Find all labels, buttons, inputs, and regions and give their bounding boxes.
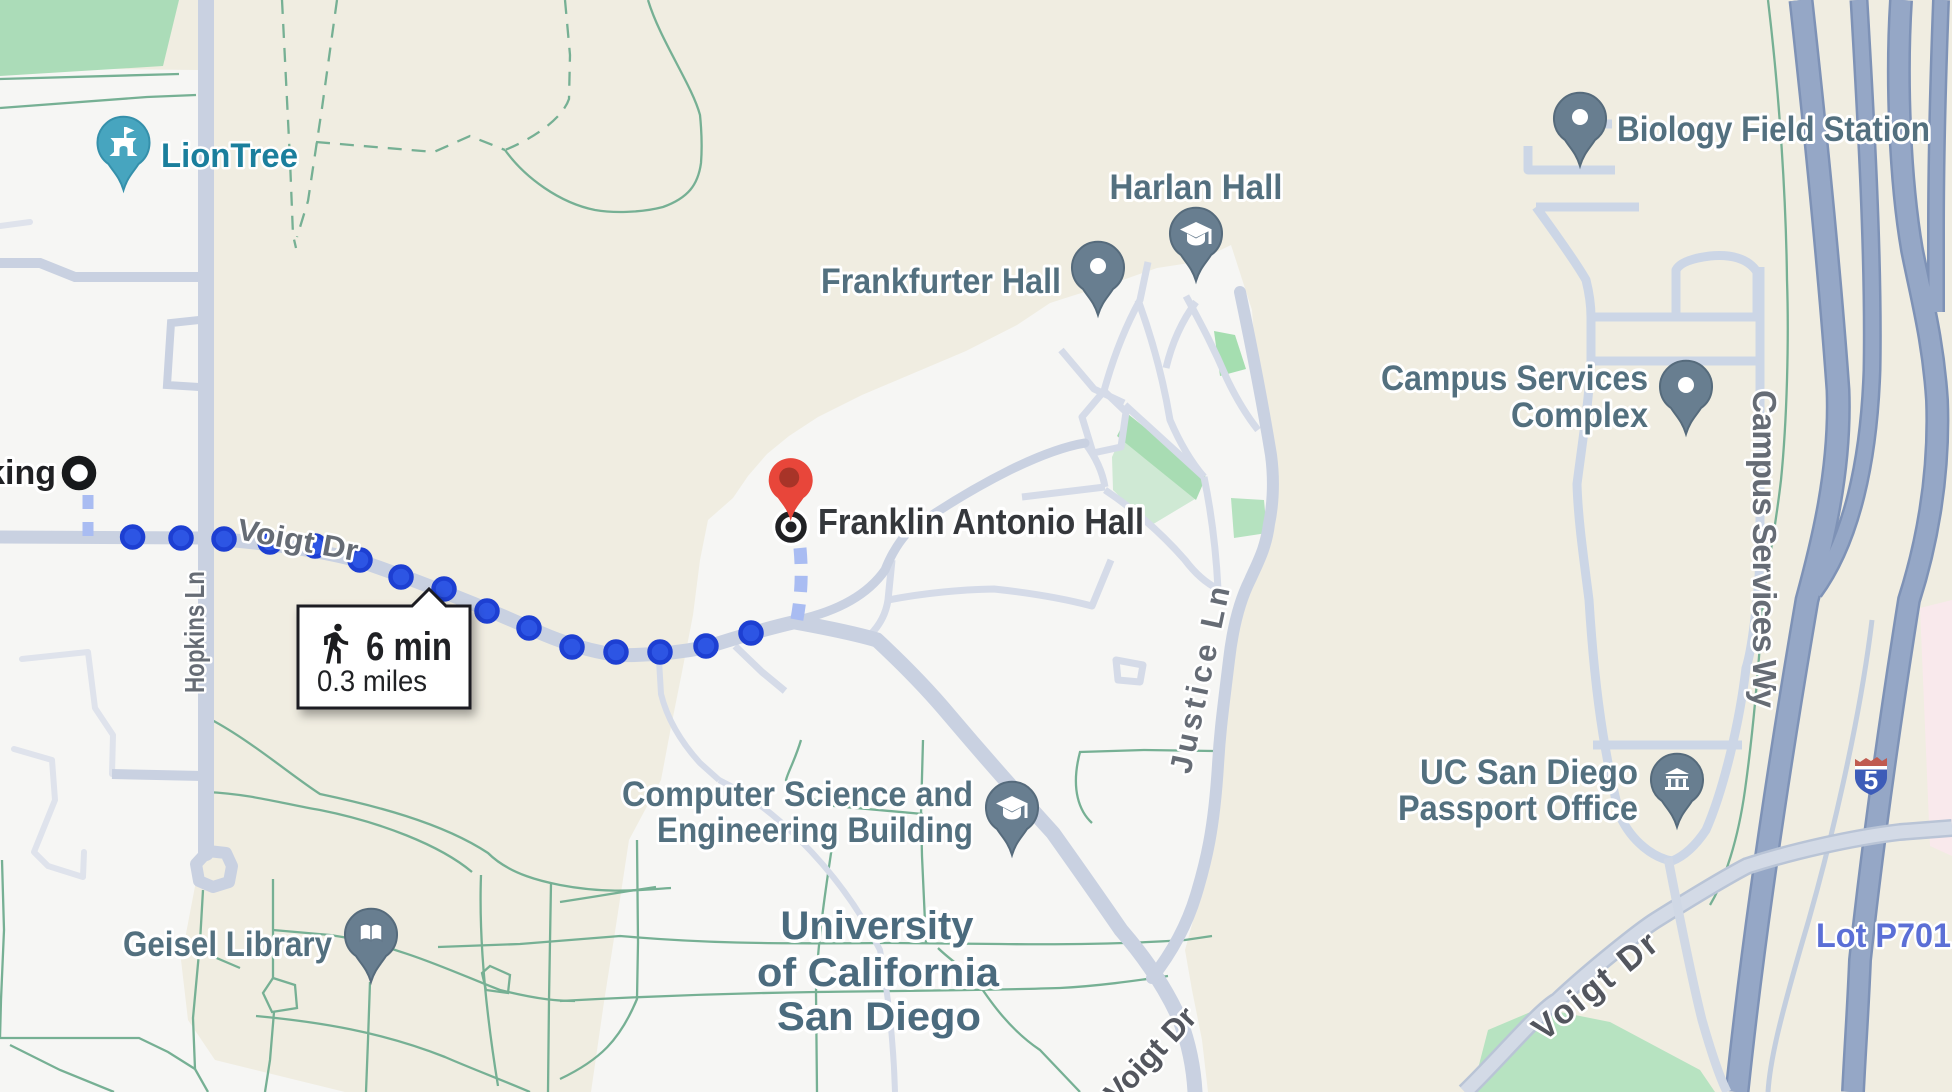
svg-text:Frankfurter Hall: Frankfurter Hall: [821, 262, 1061, 301]
svg-text:Passport Office: Passport Office: [1398, 789, 1638, 828]
svg-text:Biology Field Station: Biology Field Station: [1617, 110, 1930, 149]
svg-text:Hopkins Ln: Hopkins Ln: [179, 571, 210, 693]
svg-text:LionTree: LionTree: [161, 137, 298, 175]
svg-text:king: king: [0, 454, 56, 492]
svg-text:Geisel Library: Geisel Library: [123, 925, 332, 964]
svg-text:Campus Services: Campus Services: [1381, 359, 1648, 398]
svg-text:5: 5: [1864, 765, 1878, 795]
svg-text:Harlan Hall: Harlan Hall: [1110, 168, 1283, 207]
svg-text:of California: of California: [757, 951, 1000, 995]
svg-text:Computer Science and: Computer Science and: [622, 775, 973, 814]
svg-text:0.3 miles: 0.3 miles: [317, 665, 427, 698]
svg-text:University: University: [781, 904, 975, 948]
svg-text:Complex: Complex: [1511, 396, 1648, 435]
svg-text:Franklin Antonio Hall: Franklin Antonio Hall: [818, 501, 1144, 542]
svg-text:6 min: 6 min: [366, 625, 452, 669]
svg-text:Campus Services Wy: Campus Services Wy: [1746, 390, 1783, 709]
svg-text:Engineering Building: Engineering Building: [657, 811, 973, 850]
svg-text:UC San Diego: UC San Diego: [1420, 753, 1638, 792]
svg-text:San Diego: San Diego: [777, 995, 981, 1039]
svg-text:Lot P701: Lot P701: [1816, 917, 1951, 955]
